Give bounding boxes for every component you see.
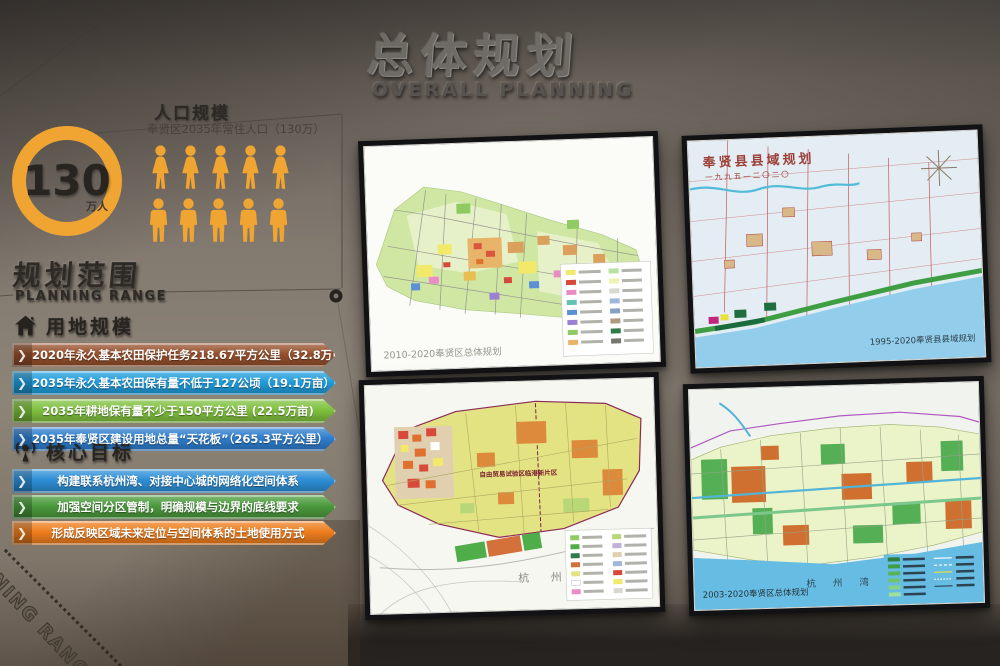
male-icons-row	[145, 197, 292, 245]
land-use-banner-text: 2020年永久基本农田保护任务218.67平方公里（32.8万亩）	[32, 347, 336, 363]
map-1995-2020-county-plan: 奉贤县县域规划 一九九五—二〇二〇 1995-2020奉贤县县域规划	[682, 124, 992, 373]
broadcast-person-icon	[14, 440, 37, 463]
core-goal-banner-text: 构建联系杭州湾、对接中心城的网络化空间体系	[32, 473, 336, 489]
chevron-right-icon: ❯	[12, 399, 32, 423]
chevron-right-icon: ❯	[12, 469, 32, 493]
map-2003-2020-overall-plan: 杭 州 湾 2003-2020奉贤区总体规划	[683, 376, 990, 616]
land-use-banner: ❯ 2035年永久基本农田保有量不低于127公顷（19.1万亩）	[12, 371, 336, 395]
chevron-right-icon: ❯	[12, 521, 32, 545]
land-use-banner: ❯ 2035年耕地保有量不少于150平方公里 (22.5万亩)	[12, 399, 336, 423]
chevron-right-icon: ❯	[12, 343, 32, 367]
map-d-legend	[884, 552, 979, 601]
core-goal-banner: ❯ 形成反映区域未来定位与空间体系的土地使用方式	[12, 521, 336, 545]
land-use-banner-text: 2035年永久基本农田保有量不低于127公顷（19.1万亩）	[32, 375, 336, 391]
house-icon	[14, 314, 37, 337]
core-goal-banner: ❯ 构建联系杭州湾、对接中心城的网络化空间体系	[12, 469, 336, 493]
female-person-icon	[237, 144, 264, 192]
chevron-right-icon: ❯	[12, 371, 32, 395]
planning-range-heading-en: PLANNING RANGE	[15, 289, 167, 304]
population-unit: 万人	[86, 198, 108, 214]
land-use-heading-label: 用地规模	[46, 312, 134, 339]
map-free-trade-zone-plan: 自由贸易试验区临港新片区 杭 州 湾	[359, 372, 666, 620]
map-c-legend	[565, 528, 653, 600]
female-person-icon	[177, 144, 204, 192]
core-goal-banner: ❯ 加强空间分区管制，明确规模与边界的底线要求	[12, 495, 336, 519]
page-subtitle: OVERALL PLANNING	[372, 79, 635, 101]
core-goal-banner-text: 加强空间分区管制，明确规模与边界的底线要求	[32, 499, 336, 515]
land-use-heading: 用地规模	[14, 312, 134, 339]
population-ring: 130 万人	[12, 126, 122, 236]
male-person-icon	[205, 197, 232, 245]
female-person-icon	[147, 144, 174, 192]
planning-range-heading: 规划范围	[11, 254, 143, 294]
map-2010-2020-overall-plan: 2010-2020奉贤区总体规划	[358, 131, 666, 377]
land-use-banner-text: 2035年耕地保有量不少于150平方公里 (22.5万亩)	[32, 403, 336, 419]
female-person-icon	[207, 144, 234, 192]
male-person-icon	[175, 197, 202, 245]
page-title: 总体规划	[366, 20, 583, 86]
core-goals-heading: 核心目标	[14, 438, 134, 465]
population-value: 130	[23, 160, 111, 202]
male-person-icon	[235, 197, 262, 245]
land-use-banner: ❯ 2020年永久基本农田保护任务218.67平方公里（32.8万亩）	[12, 343, 336, 367]
male-person-icon	[265, 197, 292, 245]
male-person-icon	[145, 197, 172, 245]
wall-knob	[330, 290, 343, 303]
chevron-right-icon: ❯	[12, 495, 32, 519]
population-subheading: 奉贤区2035年常住人口（130万）	[147, 121, 325, 137]
exhibition-wall: 总体规划 OVERALL PLANNING 人口规模 奉贤区2035年常住人口（…	[0, 0, 1000, 666]
map-d-sea-label: 杭 州 湾	[806, 576, 876, 590]
female-icons-row	[147, 144, 294, 192]
map-a-legend	[560, 261, 653, 356]
female-person-icon	[267, 144, 294, 192]
core-goals-heading-label: 核心目标	[46, 438, 134, 465]
core-goal-banner-text: 形成反映区域未来定位与空间体系的土地使用方式	[32, 525, 336, 541]
